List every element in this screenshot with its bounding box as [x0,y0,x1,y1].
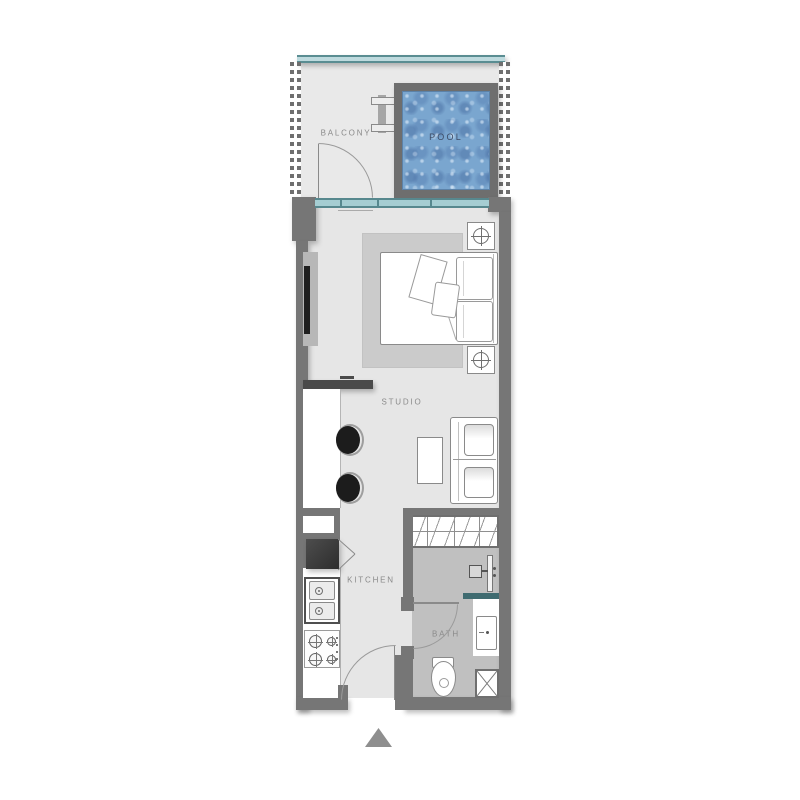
counter-edge-tick [340,376,354,379]
fridge [306,539,339,569]
window-mullion [377,200,379,206]
entry-marker-icon [365,728,392,747]
tap-icon [315,587,323,595]
breakfast-counter-edge [303,380,373,389]
studio-window-wall [315,198,489,208]
burner-icon [327,655,336,664]
service-shaft [475,669,499,698]
wardrobe [409,515,499,548]
pillow [456,257,493,300]
stove-knobs [336,637,338,663]
toilet-flush-icon [439,678,449,688]
sofa-cushion [464,467,494,498]
floor-plan: POOL BALCONY STUDIO [0,0,800,800]
tap-icon [315,607,323,615]
wall-pier-top-right [488,197,511,212]
tv [304,266,310,334]
sink-basin [309,581,335,600]
accent-cushion [431,281,460,318]
nightstand-bottom [467,346,495,374]
wall-bottom-right [403,697,511,710]
fridge-door-swing [338,537,358,571]
burner-icon [309,653,322,666]
balcony-louver-screen-left [290,62,301,198]
pool-label: POOL [429,132,463,142]
coffee-table [417,437,443,484]
sofa [450,417,498,504]
x-mark-icon [477,671,497,696]
balcony-label: BALCONY [321,129,372,138]
burner-icon [327,637,336,646]
bar-stool [336,474,360,502]
bar-stool [336,426,360,454]
stove [304,630,340,668]
pillow [456,301,493,342]
wall-bath-left [403,510,413,599]
sofa-front-line [458,422,459,501]
headboard-line [493,254,494,343]
kitchen-sink-unit [304,577,340,624]
balcony-glass-railing [297,55,505,63]
kitchen-label: KITCHEN [347,576,395,585]
kitchen-niche [303,516,334,533]
shower-knob [493,567,496,570]
shower-column [487,555,493,592]
balcony-louver-screen-right [499,62,510,198]
window-mullion [340,200,342,206]
window-mullion [430,200,432,206]
sofa-cushion [464,424,494,456]
studio-label: STUDIO [381,398,422,407]
faucet-tick [479,632,484,633]
lamp-icon [473,352,489,368]
wall-right [499,212,511,710]
pool-water: POOL [402,91,490,190]
wall-entry-right [395,655,413,710]
wall-bath-top [403,508,511,515]
wall-pier-top-left [292,197,316,241]
pool: POOL [394,83,498,198]
faucet-icon [486,631,489,634]
sink-basin [309,602,335,620]
sliding-door-leaf-line [338,210,373,211]
burner-icon [309,635,322,648]
nightstand-top [467,222,495,250]
sofa-divider [453,459,496,460]
lamp-icon [473,228,489,244]
shower-knob [493,574,496,577]
shower-arm [481,570,488,572]
